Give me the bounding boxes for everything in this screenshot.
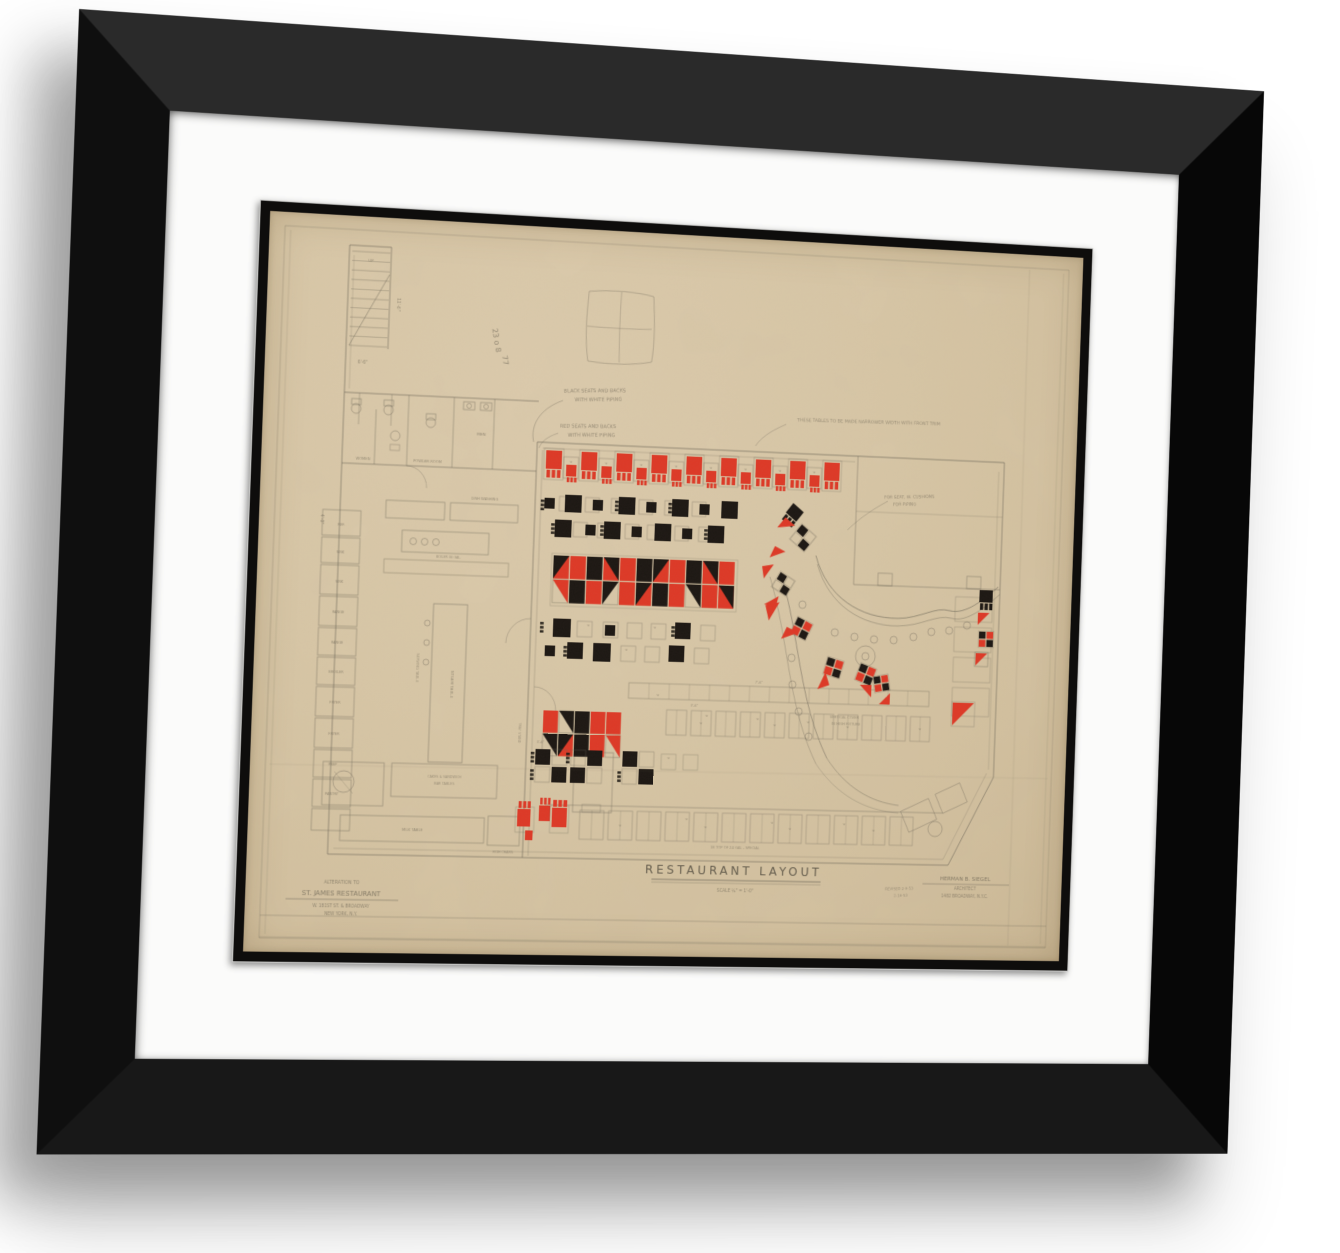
restaurant-layout-drawing: 11'-6"6'-6"4'-0"UPMENWOMENPOWDER ROOMREF… [243,211,1083,961]
mat-board: 11'-6"6'-6"4'-0"UPMENWOMENPOWDER ROOMREF… [135,111,1179,1064]
picture-frame: 11'-6"6'-6"4'-0"UPMENWOMENPOWDER ROOMREF… [37,9,1264,1154]
artwork-black-border: 11'-6"6'-6"4'-0"UPMENWOMENPOWDER ROOMREF… [232,199,1093,971]
floor-plan-svg: 11'-6"6'-6"4'-0"UPMENWOMENPOWDER ROOMREF… [243,211,1083,961]
framed-print-photo: 11'-6"6'-6"4'-0"UPMENWOMENPOWDER ROOMREF… [0,0,1340,1253]
